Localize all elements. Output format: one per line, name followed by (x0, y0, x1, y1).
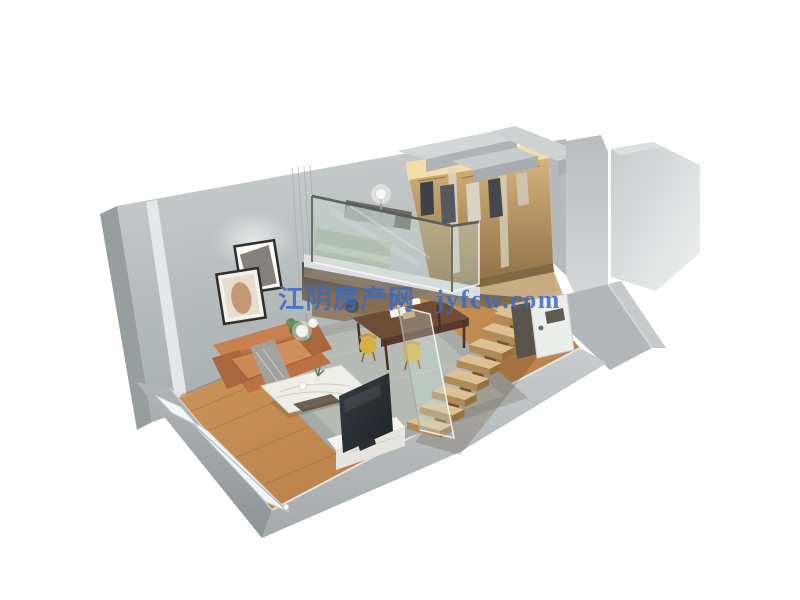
rendering-canvas: 江阴房产网 jyfcw.com (0, 0, 800, 600)
wall-art-part (216, 268, 265, 324)
hanging-garment (516, 172, 529, 206)
door-stopper-dot (283, 504, 289, 510)
lamp-globe (296, 325, 308, 337)
bedside-lamp-globe (376, 189, 387, 200)
table-cup (300, 383, 307, 390)
right-wall-columns (560, 135, 700, 370)
glass-pane-return (452, 222, 479, 292)
hanging-garment (440, 184, 456, 224)
hanging-garment (420, 181, 434, 216)
door-handle (539, 326, 544, 331)
lamp-globe (309, 319, 318, 328)
right-slab-inner (566, 135, 608, 293)
right-slab-outer (611, 142, 700, 291)
apartment-rendering (0, 0, 800, 600)
dining-chair-yellow (360, 338, 377, 355)
dining-chair-dark (345, 299, 359, 313)
bathroom-door (530, 294, 574, 358)
table-vase (316, 376, 321, 381)
hanging-garment (466, 182, 481, 222)
table-cup (310, 380, 315, 385)
